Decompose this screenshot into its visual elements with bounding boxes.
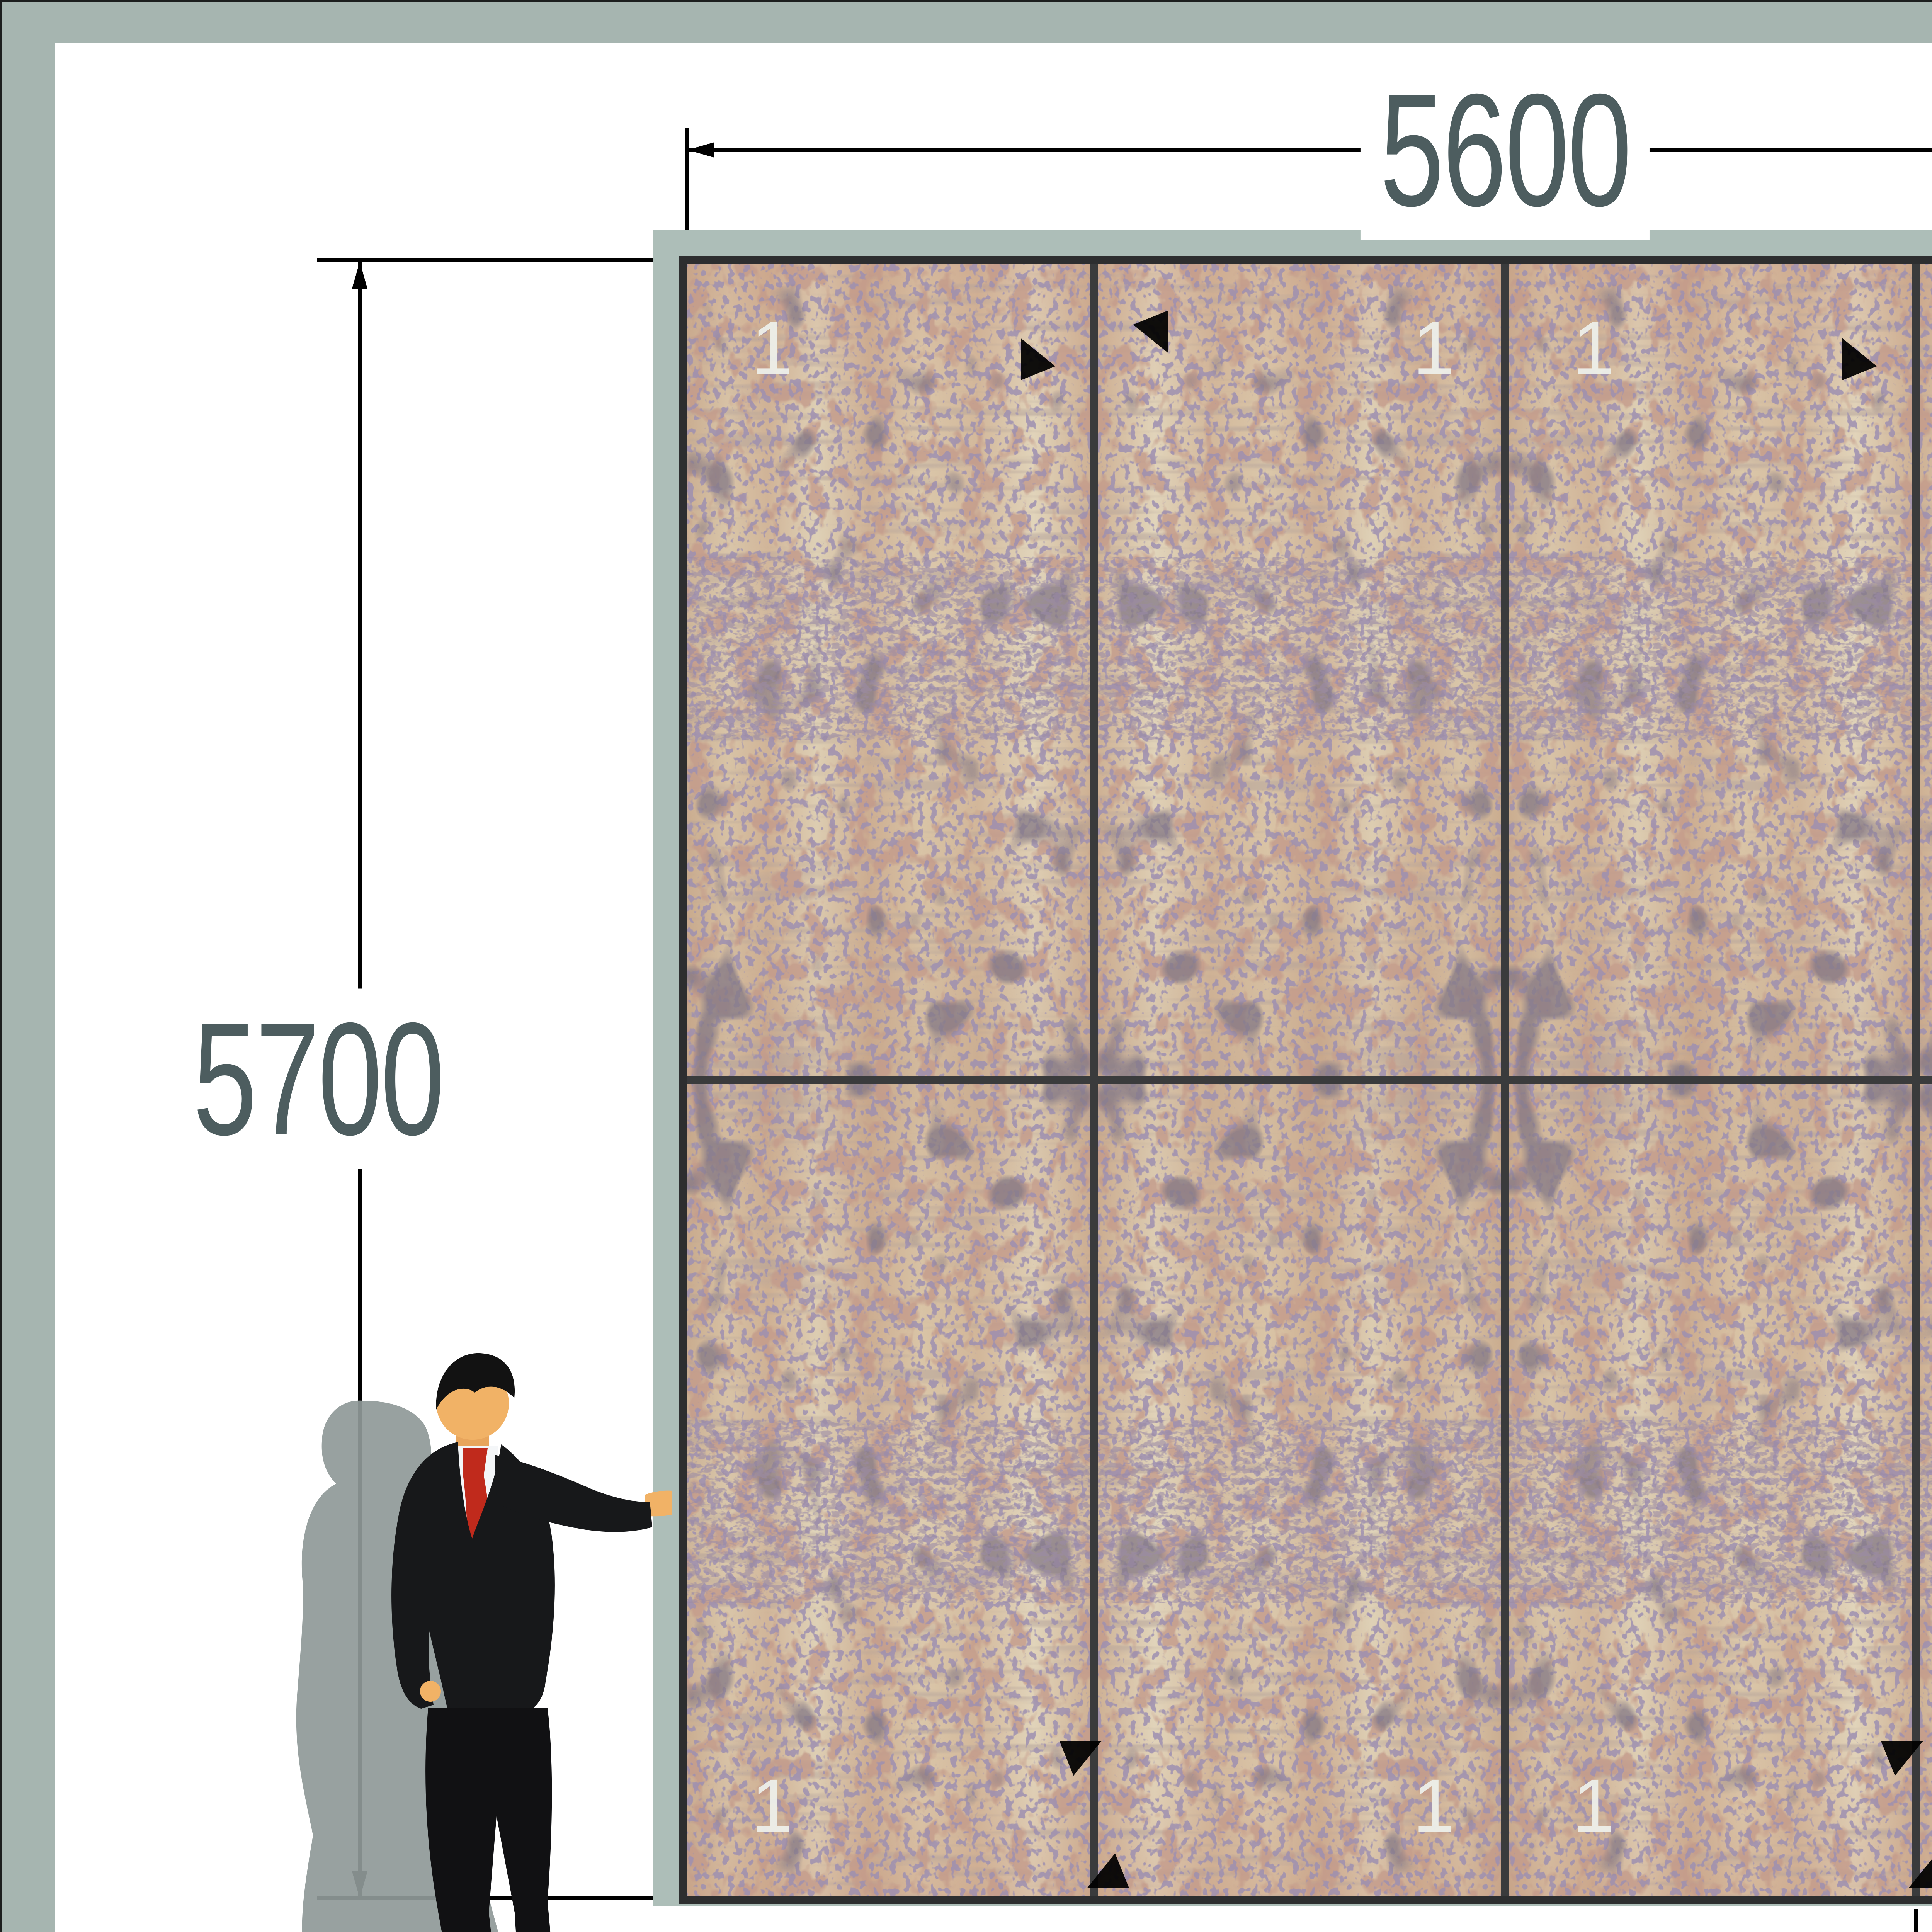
person-figure xyxy=(247,1321,672,1932)
dim-width-arrow-left xyxy=(687,142,714,158)
figure-trousers xyxy=(425,1708,557,1932)
slab-number: 1 xyxy=(1573,311,1614,386)
figure-man xyxy=(391,1353,672,1932)
slab-number: 1 xyxy=(1413,1768,1455,1844)
rotate-icon xyxy=(1842,272,1932,419)
rotate-icon xyxy=(1842,1741,1932,1888)
stone-wall: 1 1 1 1 1 1 1 1 xyxy=(679,256,1932,1904)
slab-number: 1 xyxy=(751,311,793,386)
dim-height-arrow-top xyxy=(352,262,367,289)
dim-width-line xyxy=(687,148,1932,152)
dimension-height-label: 5700 xyxy=(173,989,463,1169)
dim-height-ext-top xyxy=(317,258,679,262)
slab-number: 1 xyxy=(1573,1768,1614,1844)
dim-slab-ext-left xyxy=(1914,1909,1918,1932)
figure-hand-left xyxy=(420,1681,441,1702)
dimension-width-label: 5600 xyxy=(1361,60,1650,240)
slab-number: 1 xyxy=(1413,311,1455,386)
rotate-icon xyxy=(1021,1741,1168,1888)
rotate-icon xyxy=(1021,272,1168,419)
slab-number: 1 xyxy=(751,1768,793,1844)
